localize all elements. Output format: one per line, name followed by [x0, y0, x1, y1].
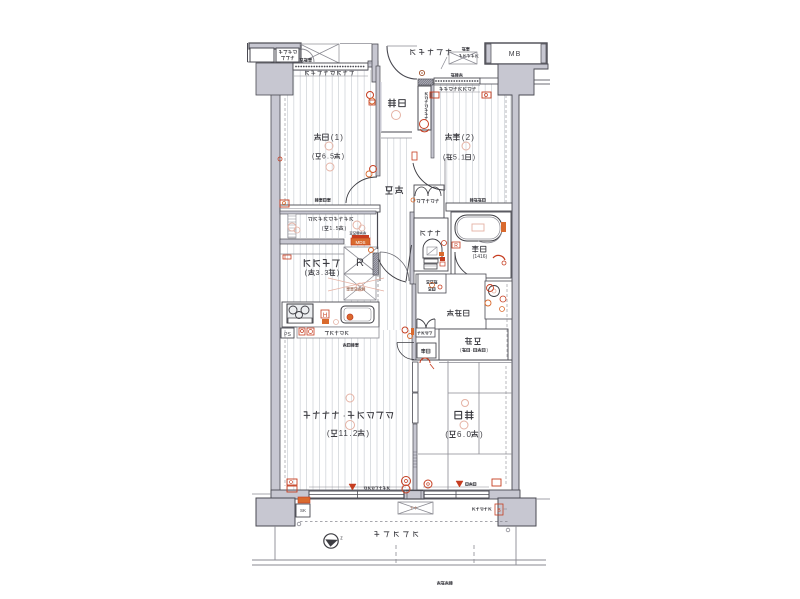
svg-text:2: 2 [353, 429, 358, 438]
svg-text:(: ( [331, 133, 334, 142]
svg-text:R: R [454, 243, 458, 249]
svg-text:.: . [463, 430, 465, 439]
svg-text:SK: SK [300, 508, 306, 513]
svg-text:(: ( [322, 226, 324, 232]
svg-text:0: 0 [467, 430, 472, 439]
svg-text:): ) [340, 133, 343, 142]
svg-text:2: 2 [466, 133, 471, 142]
svg-text:5: 5 [336, 226, 339, 232]
svg-text:.: . [321, 268, 323, 277]
svg-text:(1416): (1416) [473, 254, 488, 260]
svg-text:.: . [349, 429, 351, 438]
svg-text:5: 5 [330, 154, 334, 161]
svg-text:MDS: MDS [356, 240, 366, 245]
svg-text:MB: MB [509, 51, 522, 58]
svg-text:): ) [473, 155, 475, 162]
svg-text:): ) [342, 154, 344, 161]
svg-text:·: · [471, 348, 472, 353]
svg-text:(: ( [445, 430, 448, 439]
svg-text:1: 1 [335, 133, 340, 142]
svg-text:6: 6 [322, 154, 326, 161]
svg-text:R: R [356, 257, 364, 269]
svg-text:1: 1 [461, 155, 465, 162]
svg-text:6: 6 [457, 430, 462, 439]
svg-text:1: 1 [329, 226, 332, 232]
svg-text:·: · [343, 410, 346, 420]
svg-text:1: 1 [343, 429, 348, 438]
svg-text:3: 3 [316, 268, 320, 277]
svg-text:(: ( [462, 133, 465, 142]
svg-text:): ) [345, 226, 347, 232]
svg-text:): ) [480, 430, 483, 439]
svg-text:5: 5 [453, 155, 457, 162]
svg-text:3: 3 [324, 268, 328, 277]
svg-text:): ) [471, 133, 474, 142]
svg-text:): ) [366, 429, 369, 438]
svg-text:.: . [327, 154, 329, 161]
svg-text:.: . [458, 155, 460, 162]
svg-text:H: H [323, 313, 327, 319]
svg-text:(: ( [327, 429, 330, 438]
svg-text:.: . [333, 226, 334, 232]
